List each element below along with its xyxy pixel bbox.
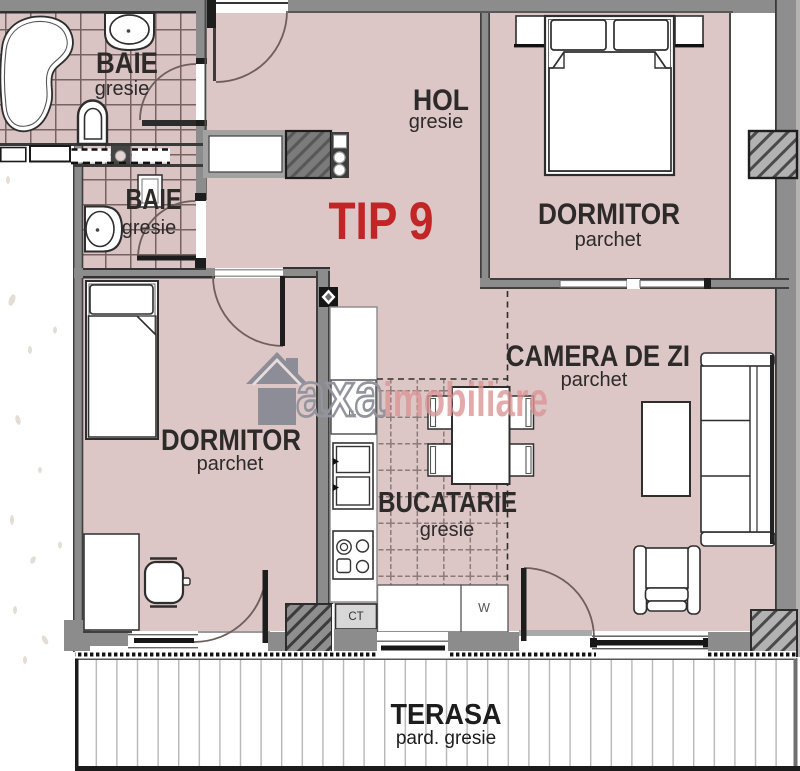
svg-text:gresie: gresie [409,111,463,133]
svg-text:BAIE: BAIE [96,47,158,80]
svg-text:gresie: gresie [420,519,474,541]
svg-text:parchet: parchet [561,369,628,391]
svg-text:axa: axa [296,361,384,430]
svg-text:parchet: parchet [575,229,642,251]
svg-text:TIP 9: TIP 9 [329,192,434,251]
svg-text:W: W [478,601,490,615]
svg-text:pard. gresie: pard. gresie [396,728,496,749]
svg-text:BUCATARIE: BUCATARIE [378,487,517,519]
svg-text:gresie: gresie [122,217,176,239]
svg-text:parchet: parchet [197,453,264,475]
svg-text:BAIE: BAIE [126,184,182,216]
svg-text:CT: CT [348,611,363,623]
svg-text:TERASA: TERASA [391,699,502,731]
svg-text:DORMITOR: DORMITOR [538,198,680,231]
svg-text:gresie: gresie [95,78,149,100]
svg-text:imobiliare: imobiliare [383,374,548,427]
